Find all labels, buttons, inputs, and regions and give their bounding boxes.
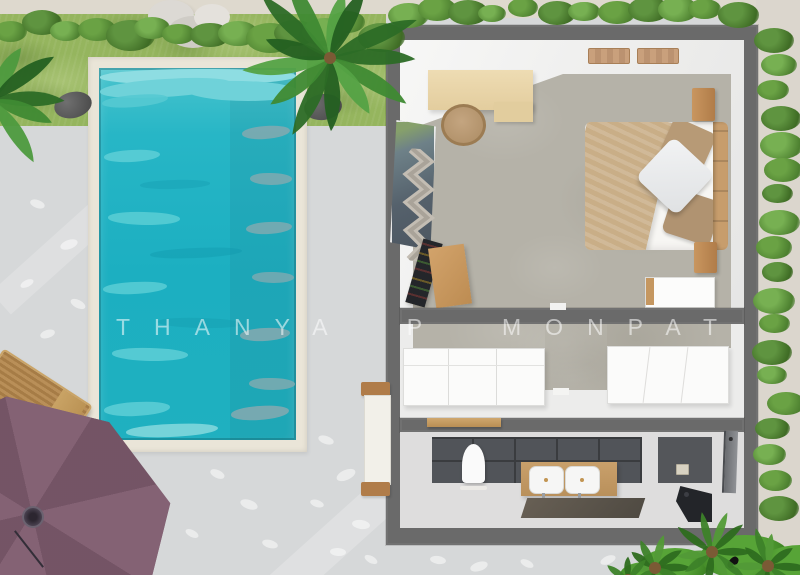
hedge-right[interactable] — [761, 54, 797, 76]
floor-plan-canvas: THANYA P MONPAT — [0, 0, 800, 575]
shower-panel[interactable] — [658, 437, 712, 483]
hedge-right[interactable] — [757, 80, 789, 100]
nightstand-bottom[interactable] — [694, 242, 717, 273]
toilet[interactable] — [462, 444, 485, 483]
towel-shelf[interactable] — [427, 418, 501, 427]
door-mat[interactable] — [637, 48, 679, 64]
door-threshold — [553, 388, 569, 395]
pool-ripple — [103, 281, 167, 295]
wall-bench-cushion[interactable] — [364, 395, 391, 485]
pool-ripple — [104, 401, 170, 417]
hedge-right[interactable] — [764, 158, 800, 182]
wall-bench-wood-bottom[interactable] — [361, 482, 390, 496]
nightstand-top[interactable] — [692, 88, 715, 121]
sink-right[interactable] — [565, 466, 600, 494]
mirror-door[interactable] — [722, 431, 738, 493]
pool-ripple — [126, 422, 218, 438]
bush-top-row[interactable] — [688, 0, 721, 19]
hedge-right[interactable] — [753, 444, 786, 465]
palm-tree-large[interactable] — [214, 0, 446, 174]
wardrobe-divider — [643, 347, 651, 403]
desk-chair[interactable] — [441, 104, 486, 146]
bush-top-row[interactable] — [718, 2, 759, 27]
fern[interactable] — [704, 502, 800, 575]
hedge-right[interactable] — [767, 392, 800, 415]
light-switch[interactable] — [676, 464, 689, 475]
wall-bench-wood-top[interactable] — [361, 382, 390, 396]
fern[interactable] — [574, 526, 682, 575]
sink-left[interactable] — [529, 466, 564, 494]
headboard — [713, 122, 728, 250]
hedge-right[interactable] — [760, 132, 800, 159]
pool-ripple — [140, 179, 210, 189]
bush-top-row[interactable] — [568, 2, 600, 22]
pool-ripple — [108, 211, 180, 227]
hedge-right[interactable] — [757, 366, 786, 384]
wardrobe-divider — [404, 365, 544, 366]
pool-ripple — [150, 246, 242, 259]
double-bed[interactable] — [585, 122, 728, 250]
bush-top-row[interactable] — [508, 0, 538, 17]
door-mat[interactable] — [588, 48, 630, 64]
door-threshold — [550, 303, 566, 310]
closet-floor-aisle — [545, 324, 607, 390]
hedge-right[interactable] — [759, 314, 789, 333]
palm-tree-corner[interactable] — [0, 0, 94, 202]
dresser[interactable] — [645, 277, 715, 308]
wardrobe-divider — [448, 349, 449, 405]
desk-drawer-unit[interactable] — [494, 102, 533, 122]
wardrobe-divider — [496, 349, 497, 405]
door-handle — [729, 437, 733, 441]
toilet-mat — [460, 486, 487, 490]
drain-dot — [580, 478, 584, 482]
pool-ripple — [104, 149, 160, 163]
wardrobe-left[interactable] — [403, 348, 545, 406]
umbrella-hub — [22, 506, 44, 528]
pool-ripple — [112, 347, 188, 363]
hedge-right[interactable] — [762, 262, 794, 282]
wardrobe-right[interactable] — [607, 346, 729, 404]
hedge-right[interactable] — [755, 418, 789, 439]
wardrobe-divider — [681, 347, 689, 403]
hedge-right[interactable] — [754, 28, 794, 53]
dresser-wood-edge — [646, 278, 654, 305]
drain-dot — [544, 478, 548, 482]
hedge-right[interactable] — [756, 236, 792, 259]
wall-divider-bedroom-closet — [400, 308, 744, 324]
hedge-right[interactable] — [761, 106, 800, 131]
hedge-right[interactable] — [752, 340, 792, 365]
bush-top-row[interactable] — [478, 5, 506, 22]
